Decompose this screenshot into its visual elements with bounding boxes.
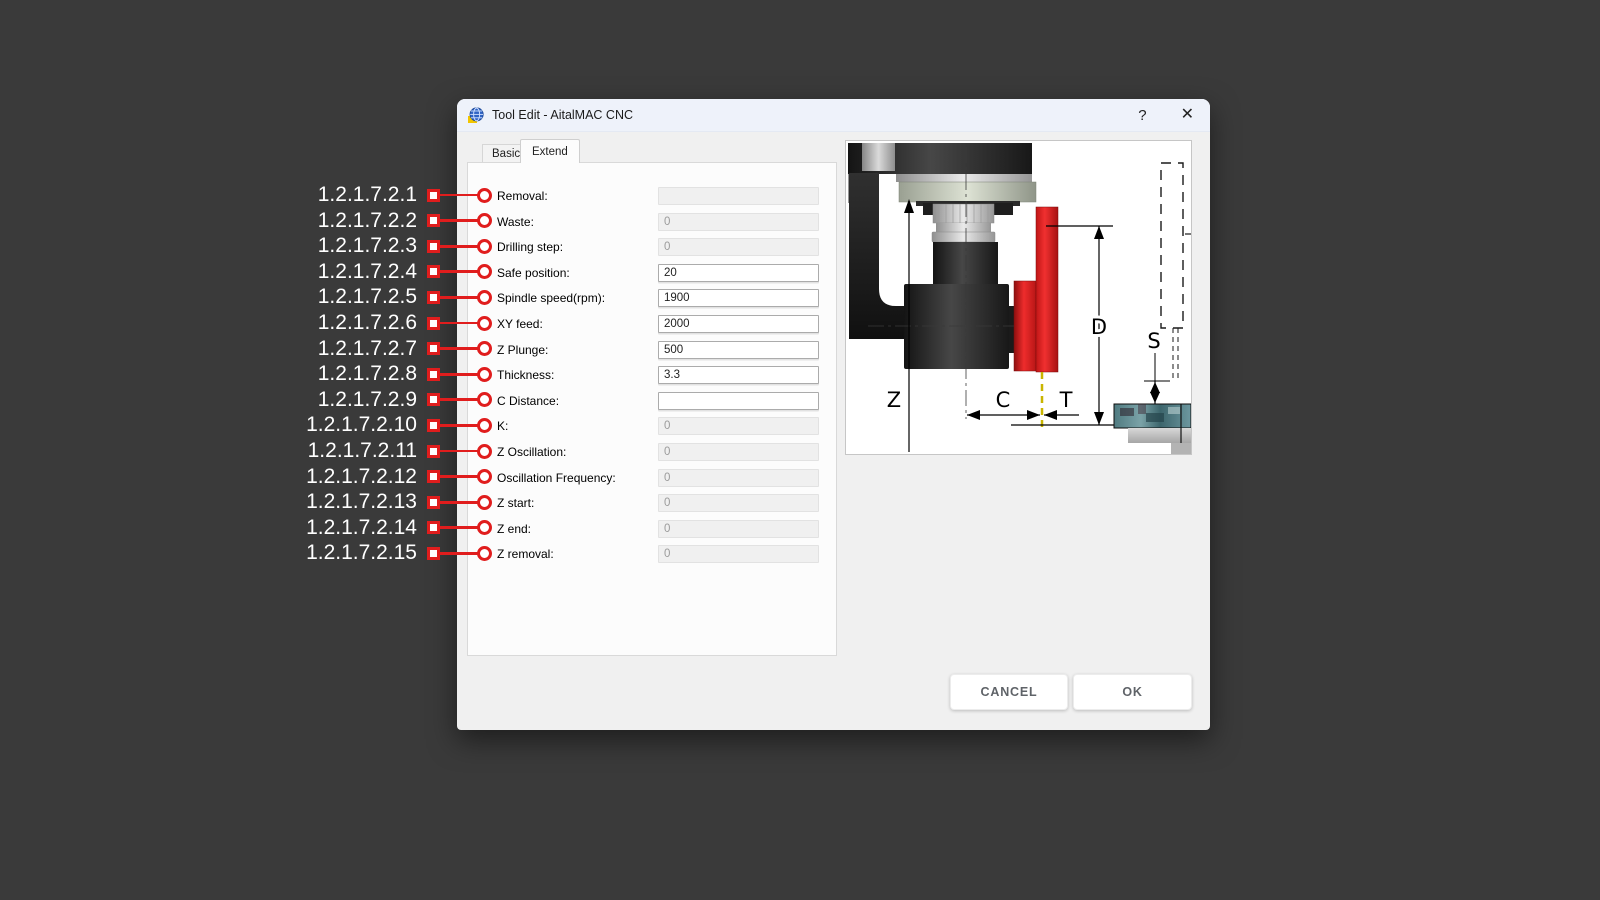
annotation-ref-z-end: 1.2.1.7.2.14: [260, 514, 417, 542]
field-drilling-step-label: Drilling step:: [497, 240, 563, 254]
field-spindle-speed-input[interactable]: [658, 289, 819, 307]
field-oscillation-frequency-input: [658, 469, 819, 487]
dim-label-z: Z: [887, 388, 901, 412]
form-row-oscillation-frequency: Oscillation Frequency:: [468, 465, 836, 491]
annotation-square-z-start: [427, 496, 440, 509]
field-safe-position-label: Safe position:: [497, 266, 570, 280]
field-oscillation-frequency-label: Oscillation Frequency:: [497, 471, 616, 485]
field-k-input: [658, 417, 819, 435]
form-row-waste: Waste:: [468, 209, 836, 235]
form-row-z-removal: Z removal:: [468, 541, 836, 567]
annotation-ref-z-removal: 1.2.1.7.2.15: [260, 539, 417, 567]
annotation-square-z-removal: [427, 547, 440, 560]
field-z-end-input: [658, 520, 819, 538]
annotation-ref-c-distance: 1.2.1.7.2.9: [260, 386, 417, 414]
annotation-ref-oscillation-frequency: 1.2.1.7.2.12: [260, 463, 417, 491]
form-row-z-end: Z end:: [468, 516, 836, 542]
field-waste-label: Waste:: [497, 215, 534, 229]
field-removal-input: [658, 187, 819, 205]
field-z-oscillation-label: Z Oscillation:: [497, 445, 566, 459]
help-button[interactable]: ?: [1138, 108, 1146, 123]
form-row-xy-feed: XY feed:: [468, 311, 836, 337]
annotation-square-spindle-speed: [427, 291, 440, 304]
dim-label-d: D: [1091, 315, 1107, 339]
annotation-ref-k: 1.2.1.7.2.10: [260, 411, 417, 439]
field-drilling-step-input: [658, 238, 819, 256]
annotation-ref-z-oscillation: 1.2.1.7.2.11: [260, 437, 417, 465]
field-z-removal-label: Z removal:: [497, 547, 554, 561]
field-z-plunge-label: Z Plunge:: [497, 343, 548, 357]
title-bar: Tool Edit - AitalMAC CNC ? ✕: [457, 99, 1210, 132]
field-xy-feed-input[interactable]: [658, 315, 819, 333]
dim-label-t: T: [1059, 388, 1073, 412]
tool-edit-dialog: Tool Edit - AitalMAC CNC ? ✕ Basic Exten…: [457, 99, 1210, 730]
field-c-distance-input[interactable]: [658, 392, 819, 410]
annotation-ref-safe-position: 1.2.1.7.2.4: [260, 258, 417, 286]
dim-label-s: S: [1147, 329, 1160, 353]
tool-diagram-panel: Z C T D S: [845, 140, 1192, 455]
annotation-square-xy-feed: [427, 317, 440, 330]
annotation-square-k: [427, 419, 440, 432]
annotation-square-z-end: [427, 521, 440, 534]
cancel-button[interactable]: CANCEL: [950, 674, 1068, 710]
annotation-ref-thickness: 1.2.1.7.2.8: [260, 360, 417, 388]
field-thickness-label: Thickness:: [497, 368, 554, 382]
globe-icon: [468, 107, 484, 123]
field-z-removal-input: [658, 545, 819, 563]
annotation-ref-xy-feed: 1.2.1.7.2.6: [260, 309, 417, 337]
field-z-start-input: [658, 494, 819, 512]
form-row-z-start: Z start:: [468, 490, 836, 516]
annotation-ref-z-start: 1.2.1.7.2.13: [260, 488, 417, 516]
field-safe-position-input[interactable]: [658, 264, 819, 282]
annotation-ref-waste: 1.2.1.7.2.2: [260, 207, 417, 235]
annotation-square-oscillation-frequency: [427, 470, 440, 483]
field-xy-feed-label: XY feed:: [497, 317, 543, 331]
form-row-safe-position: Safe position:: [468, 260, 836, 286]
annotation-square-z-plunge: [427, 342, 440, 355]
field-removal-label: Removal:: [497, 189, 548, 203]
annotation-square-c-distance: [427, 393, 440, 406]
annotation-square-z-oscillation: [427, 445, 440, 458]
field-c-distance-label: C Distance:: [497, 394, 559, 408]
form-row-thickness: Thickness:: [468, 362, 836, 388]
field-thickness-input[interactable]: [658, 366, 819, 384]
form-row-removal: Removal:: [468, 183, 836, 209]
annotation-ref-drilling-step: 1.2.1.7.2.3: [260, 232, 417, 260]
form-row-z-plunge: Z Plunge:: [468, 337, 836, 363]
ok-button[interactable]: OK: [1073, 674, 1192, 710]
form-row-k: K:: [468, 413, 836, 439]
annotation-ref-removal: 1.2.1.7.2.1: [260, 181, 417, 209]
field-spindle-speed-label: Spindle speed(rpm):: [497, 291, 605, 305]
annotation-square-safe-position: [427, 265, 440, 278]
close-button[interactable]: ✕: [1181, 107, 1194, 123]
annotation-ref-spindle-speed: 1.2.1.7.2.5: [260, 283, 417, 311]
dim-label-c: C: [996, 388, 1011, 412]
annotation-square-drilling-step: [427, 240, 440, 253]
field-k-label: K:: [497, 419, 508, 433]
field-z-plunge-input[interactable]: [658, 341, 819, 359]
tab-extend[interactable]: Extend: [520, 139, 580, 163]
form-row-spindle-speed: Spindle speed(rpm):: [468, 285, 836, 311]
field-waste-input: [658, 213, 819, 231]
form-panel: Removal:Waste:Drilling step:Safe positio…: [467, 162, 837, 656]
tool-diagram: Z C T D S: [846, 141, 1191, 454]
field-z-oscillation-input: [658, 443, 819, 461]
annotation-square-removal: [427, 189, 440, 202]
annotation-square-thickness: [427, 368, 440, 381]
annotation-square-waste: [427, 214, 440, 227]
form-row-z-oscillation: Z Oscillation:: [468, 439, 836, 465]
form-row-drilling-step: Drilling step:: [468, 234, 836, 260]
field-z-end-label: Z end:: [497, 522, 531, 536]
form-row-c-distance: C Distance:: [468, 388, 836, 414]
annotation-ref-z-plunge: 1.2.1.7.2.7: [260, 335, 417, 363]
field-z-start-label: Z start:: [497, 496, 534, 510]
window-title: Tool Edit - AitalMAC CNC: [492, 108, 633, 122]
